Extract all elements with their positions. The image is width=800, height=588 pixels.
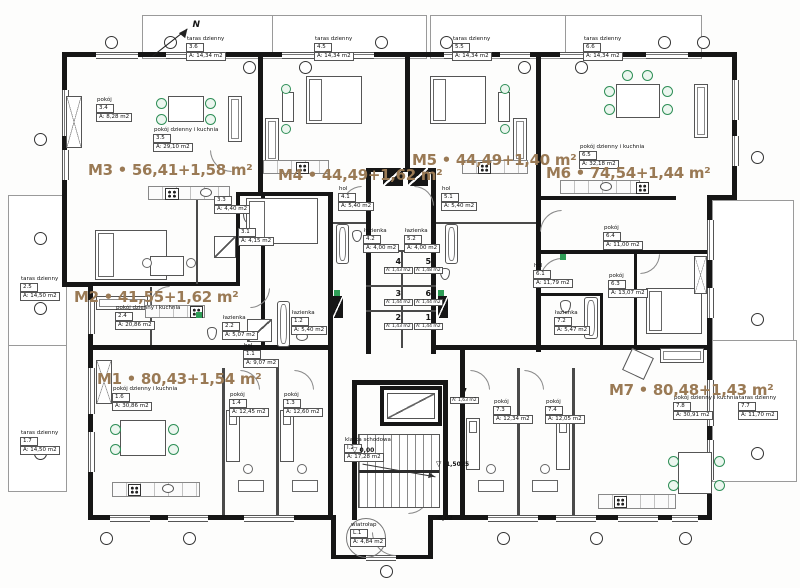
wall <box>536 52 541 352</box>
furniture-symbol <box>66 96 82 148</box>
floor-plan-canvas: taras dzienny 3.6 A: 14,34 m2 taras dzie… <box>0 0 800 588</box>
room-name: taras dzienny <box>452 36 492 43</box>
room-number: 7.8 <box>673 402 691 411</box>
storage-unit-label: 7 A: 1,63 m2 <box>450 388 479 404</box>
furniture-symbol <box>120 420 166 456</box>
room-area: A: 14,34 m2 <box>452 52 492 61</box>
room-label: łazienka 7.2 A: 5,47 m2 <box>554 310 590 335</box>
room-label: taras dzienny 2.5 A: 14,50 m2 <box>20 276 60 301</box>
furniture-symbol <box>282 92 294 122</box>
room-number: 4.1 <box>338 193 356 202</box>
room-area: A: 30,86 m2 <box>112 402 152 411</box>
room-name: wiatrołap <box>350 522 386 529</box>
grid-marker-circle <box>34 302 47 315</box>
storage-unit-label: 6 A: 1,44 m2 <box>414 290 443 306</box>
room-name: pokój <box>229 392 269 399</box>
storage-number: 6 <box>414 290 443 298</box>
room-area: A: 5,47 m2 <box>554 326 590 335</box>
window <box>732 136 739 166</box>
north-arrow-icon: N <box>142 18 198 70</box>
storage-unit-label: 5 A: 1,48 m2 <box>414 258 443 274</box>
window <box>96 52 138 59</box>
furniture-symbol <box>614 496 627 508</box>
wall <box>236 192 333 196</box>
room-number: 7.3 <box>493 406 511 415</box>
storage-number: 2 <box>384 314 413 322</box>
furniture-symbol <box>156 114 167 125</box>
room-area: A: 20,86 m2 <box>115 321 155 330</box>
room-label: pokój dzienny i kuchnia 3.5 A: 29,10 m2 <box>153 127 219 152</box>
room-area: A: 4,00 m2 <box>363 244 399 253</box>
furniture-symbol <box>280 410 294 462</box>
furniture-symbol <box>228 96 242 142</box>
wall <box>88 282 240 286</box>
room-number: 1.6 <box>112 393 130 402</box>
room-number: 6.1 <box>533 270 551 279</box>
furniture-symbol <box>250 288 270 308</box>
furniture-symbol <box>678 452 712 494</box>
room-name: łazienka <box>363 228 399 235</box>
room-label: łazienka 1.2 A: 5,40 m2 <box>291 310 327 335</box>
room-label: pokój 1.4 A: 12,45 m2 <box>229 392 269 417</box>
furniture-symbol <box>142 258 152 268</box>
room-number: 5.2 <box>404 235 422 244</box>
room-name: hol <box>441 186 477 193</box>
room-number: 4.5 <box>314 43 332 52</box>
room-name: łazienka <box>222 315 258 322</box>
wall <box>328 192 333 349</box>
grid-marker-circle <box>679 532 692 545</box>
room-area: A: 9,07 m2 <box>243 359 279 368</box>
furniture-symbol <box>622 348 654 380</box>
room-area: A: 12,34 m2 <box>493 415 533 424</box>
window <box>556 515 596 522</box>
grid-marker-circle <box>105 36 118 49</box>
partition-wall <box>196 192 198 284</box>
room-area: A: 5,40 m2 <box>291 326 327 335</box>
partition-wall <box>222 368 225 515</box>
wall <box>328 345 333 515</box>
furniture-symbol <box>294 370 314 390</box>
room-label: łazienka 2.2 A: 5,07 m2 <box>222 315 258 340</box>
room-label: pokój 1.3 A: 12,60 m2 <box>283 392 323 417</box>
room-name: pokój <box>283 392 323 399</box>
storage-number: 1 <box>414 314 443 322</box>
storage-number: 4 <box>384 258 413 266</box>
room-number: 1.2 <box>291 317 309 326</box>
room-name: łazienka <box>404 228 440 235</box>
furniture-symbol <box>150 256 184 276</box>
room-label: pokój dzienny i kuchnia 1.6 A: 30,86 m2 <box>112 386 178 411</box>
storage-unit-label: 4 A: 1,43 m2 <box>384 258 413 274</box>
north-label: N <box>192 20 200 30</box>
storage-number: 7 <box>450 388 479 396</box>
room-number: 2.4 <box>115 312 133 321</box>
room-area: A: 17,28 m2 <box>344 453 384 462</box>
grid-marker-circle <box>380 565 393 578</box>
room-number: 4.2 <box>363 235 381 244</box>
wall <box>258 52 263 196</box>
grid-marker-circle <box>575 61 588 74</box>
room-label: pokój 3.4 A: 8,28 m2 <box>96 97 132 122</box>
level-triangle-icon: ▽ <box>436 460 441 468</box>
furniture-symbol <box>214 236 236 258</box>
level-value: -0,02 <box>435 515 452 522</box>
furniture-symbol <box>333 296 343 318</box>
window <box>488 515 538 522</box>
level-marker: ▽ 0,00 <box>352 446 374 454</box>
room-number: 1.7 <box>20 437 38 446</box>
grid-marker-circle <box>34 232 47 245</box>
furniture-symbol <box>694 84 708 138</box>
room-area: A: 12,05 m2 <box>545 415 585 424</box>
storage-unit-label: 1 A: 1,44 m2 <box>414 314 443 330</box>
room-number: 2.5 <box>20 283 38 292</box>
furniture-symbol <box>243 464 253 474</box>
furniture-symbol <box>662 86 673 97</box>
furniture-symbol <box>478 480 504 492</box>
wall <box>88 345 333 350</box>
window <box>168 515 208 522</box>
furniture-symbol <box>162 484 174 493</box>
furniture-symbol <box>186 258 196 268</box>
wall <box>634 252 637 349</box>
room-name: hol <box>243 343 279 350</box>
furniture-symbol <box>486 464 496 474</box>
storage-area: A: 1,44 m2 <box>414 323 443 330</box>
furniture-symbol <box>430 76 486 124</box>
furniture-symbol <box>207 327 217 340</box>
storage-area: A: 1,44 m2 <box>384 299 413 306</box>
room-name: łazienka <box>554 310 590 317</box>
furniture-symbol <box>226 410 240 462</box>
grid-marker-circle <box>375 36 388 49</box>
wall <box>405 52 410 172</box>
grid-marker-circle <box>751 447 764 460</box>
furniture-symbol <box>668 456 679 467</box>
apartment-label: M1 • 80,43+1,54 m² <box>97 370 261 388</box>
storage-area: A: 1,44 m2 <box>414 299 443 306</box>
level-marker: ▽ -1,5075 <box>436 460 469 468</box>
furniture-symbol <box>352 230 362 242</box>
furniture-symbol <box>714 456 725 467</box>
room-label: taras dzienny 1.7 A: 14,50 m2 <box>20 430 60 455</box>
room-label: pokój 6.4 A: 11,00 m2 <box>603 225 643 250</box>
grid-marker-circle <box>299 61 312 74</box>
room-area: A: 14,34 m2 <box>314 52 354 61</box>
room-number: 7.4 <box>545 406 563 415</box>
room-number: 6.3 <box>608 280 626 289</box>
window <box>88 368 95 414</box>
window <box>618 515 658 522</box>
room-name: pokój <box>608 273 648 280</box>
room-number: 2.2 <box>222 322 240 331</box>
room-label: hol 5.1 A: 5,40 m2 <box>441 186 477 211</box>
furniture-symbol <box>498 92 510 122</box>
room-label: wiatrołap L.1 A: 4,84 m2 <box>350 522 386 547</box>
storage-unit-label: 3 A: 1,44 m2 <box>384 290 413 306</box>
room-area: A: 4,00 m2 <box>404 244 440 253</box>
storage-unit-label: 2 A: 1,43 m2 <box>384 314 413 330</box>
furniture-symbol <box>200 188 212 197</box>
storage-area: A: 1,43 m2 <box>384 267 413 274</box>
furniture-symbol <box>277 301 290 347</box>
storage-area: A: 1,48 m2 <box>414 267 443 274</box>
furniture-symbol <box>205 98 216 109</box>
room-name: hol <box>338 186 374 193</box>
room-label: łazienka 5.2 A: 4,00 m2 <box>404 228 440 253</box>
room-area: A: 29,10 m2 <box>153 143 193 152</box>
room-area: A: 14,34 m2 <box>583 52 623 61</box>
room-label: taras dzienny 5.5 A: 14,34 m2 <box>452 36 492 61</box>
furniture-symbol <box>500 124 510 134</box>
furniture-symbol <box>714 480 725 491</box>
room-area: A: 4,15 m2 <box>238 237 274 246</box>
room-name: taras dzienny <box>20 276 60 283</box>
grid-marker-circle <box>751 313 764 326</box>
window <box>88 432 95 472</box>
furniture-symbol <box>281 84 291 94</box>
grid-marker-circle <box>751 151 764 164</box>
furniture-symbol <box>156 98 167 109</box>
room-area: A: 14,50 m2 <box>20 446 60 455</box>
furniture-symbol <box>540 210 562 232</box>
furniture-symbol <box>600 182 612 191</box>
wall <box>600 293 603 350</box>
furniture-symbol <box>196 312 202 318</box>
furniture-symbol <box>112 482 200 497</box>
furniture-symbol <box>622 70 633 81</box>
terrace-outline <box>8 195 67 347</box>
furniture-symbol <box>560 254 566 260</box>
window <box>62 150 69 180</box>
room-label: 3.3 A: 4,40 m2 <box>214 196 250 214</box>
room-name: taras dzienny <box>583 36 623 43</box>
room-name: klatka schodowa <box>344 437 392 444</box>
room-name: pokój dzienny i kuchnia <box>153 127 219 134</box>
room-number: 3.5 <box>153 134 171 143</box>
room-label: hol 4.1 A: 5,40 m2 <box>338 186 374 211</box>
furniture-symbol <box>604 86 615 97</box>
room-number: L.1 <box>350 529 368 538</box>
room-name: pokój <box>96 97 132 104</box>
room-area: A: 4,40 m2 <box>214 205 250 214</box>
terrace-outline <box>8 345 67 492</box>
furniture-symbol <box>646 288 702 334</box>
furniture-symbol <box>640 254 660 274</box>
room-area: A: 30,91 m2 <box>673 411 713 420</box>
window <box>500 52 530 59</box>
furniture-symbol <box>110 424 121 435</box>
furniture-symbol <box>336 224 349 264</box>
storage-area: A: 1,43 m2 <box>384 323 413 330</box>
furniture-symbol <box>636 182 649 194</box>
furniture-symbol <box>334 290 340 296</box>
wall <box>331 515 336 559</box>
room-area: A: 11,00 m2 <box>603 241 643 250</box>
room-label: 3.1 A: 4,15 m2 <box>238 228 274 246</box>
furniture-symbol <box>642 70 653 81</box>
furniture-symbol <box>168 444 179 455</box>
room-name: taras dzienny <box>314 36 354 43</box>
level-value: -1,5075 <box>443 461 469 468</box>
room-name: hol <box>533 263 573 270</box>
furniture-symbol <box>168 96 204 122</box>
room-name: pokój <box>603 225 643 232</box>
furniture-symbol <box>500 84 510 94</box>
room-number: 1.3 <box>283 399 301 408</box>
room-label: pokój dzienny i kuchnia 2.4 A: 20,86 m2 <box>115 305 181 330</box>
room-area: A: 4,84 m2 <box>350 538 386 547</box>
room-number: 6.6 <box>583 43 601 52</box>
furniture-symbol <box>380 386 442 426</box>
window <box>707 220 714 260</box>
grid-marker-circle <box>34 133 47 146</box>
furniture-symbol <box>205 114 216 125</box>
furniture-symbol <box>110 444 121 455</box>
window <box>707 288 714 318</box>
room-number: 3.4 <box>96 104 114 113</box>
level-value: 0,00 <box>359 447 374 454</box>
furniture-symbol <box>445 224 458 264</box>
level-triangle-icon: ▽ <box>428 514 433 522</box>
room-name: łazienka <box>291 310 327 317</box>
room-area: A: 5,40 m2 <box>338 202 374 211</box>
apartment-label: M7 • 80,48+1,43 m² <box>609 381 773 399</box>
wall <box>732 52 737 200</box>
storage-area: A: 1,63 m2 <box>450 397 479 404</box>
wall <box>540 293 602 296</box>
room-number: 7.2 <box>554 317 572 326</box>
room-number: 3.3 <box>214 196 232 205</box>
furniture-symbol <box>281 124 291 134</box>
room-name: pokój <box>545 399 585 406</box>
room-number: 1.1 <box>243 350 261 359</box>
furniture-symbol <box>660 348 704 363</box>
room-label: hol 6.1 A: 11,79 m2 <box>533 263 573 288</box>
room-label: hol 1.1 A: 9,07 m2 <box>243 343 279 368</box>
furniture-symbol <box>616 84 660 118</box>
window <box>732 80 739 120</box>
grid-marker-circle <box>697 36 710 49</box>
room-name: pokój dzienny i kuchnia <box>579 144 645 151</box>
room-label: pokój 7.3 A: 12,34 m2 <box>493 399 533 424</box>
room-name: pokój dzienny i kuchnia <box>115 305 181 312</box>
grid-marker-circle <box>183 532 196 545</box>
level-triangle-icon: ▽ <box>352 446 357 454</box>
furniture-symbol <box>556 418 570 470</box>
window <box>672 515 698 522</box>
room-area: A: 11,70 m2 <box>738 411 778 420</box>
window <box>646 52 688 59</box>
furniture-symbol <box>598 494 676 509</box>
grid-marker-circle <box>100 532 113 545</box>
window <box>110 515 150 522</box>
wall <box>460 350 465 520</box>
storage-number: 5 <box>414 258 443 266</box>
room-area: A: 12,60 m2 <box>283 408 323 417</box>
room-label: pokój 6.3 A: 13,07 m2 <box>608 273 648 298</box>
grid-marker-circle <box>518 61 531 74</box>
room-area: A: 11,79 m2 <box>533 279 573 288</box>
room-number: 5.1 <box>441 193 459 202</box>
furniture-symbol <box>694 256 707 294</box>
partition-wall <box>517 368 520 515</box>
furniture-symbol <box>532 480 558 492</box>
furniture-symbol <box>668 480 679 491</box>
room-label: taras dzienny 4.5 A: 14,34 m2 <box>314 36 354 61</box>
room-name: pokój <box>493 399 533 406</box>
wall <box>536 196 676 200</box>
furniture-symbol <box>128 484 141 496</box>
furniture-symbol <box>662 104 673 115</box>
apartment-label: M2 • 41,55+1,62 m² <box>74 288 238 306</box>
furniture-symbol <box>292 480 318 492</box>
furniture-symbol <box>524 370 544 390</box>
furniture-symbol <box>604 104 615 115</box>
room-area: A: 5,07 m2 <box>222 331 258 340</box>
window <box>244 515 294 522</box>
grid-marker-circle <box>658 36 671 49</box>
furniture-symbol <box>540 464 550 474</box>
terrace-divider-line <box>272 15 273 57</box>
room-label: taras dzienny 6.6 A: 14,34 m2 <box>583 36 623 61</box>
room-label: pokój 7.4 A: 12,05 m2 <box>545 399 585 424</box>
room-area: A: 14,50 m2 <box>20 292 60 301</box>
room-area: A: 13,07 m2 <box>608 289 648 298</box>
furniture-symbol <box>168 424 179 435</box>
furniture-symbol <box>165 188 179 200</box>
storage-number: 3 <box>384 290 413 298</box>
room-number: 3.1 <box>238 228 256 237</box>
room-area: A: 5,40 m2 <box>441 202 477 211</box>
room-number: 5.5 <box>452 43 470 52</box>
furniture-symbol <box>297 464 307 474</box>
terrace-divider-line <box>565 15 566 57</box>
partition-wall <box>276 368 279 515</box>
room-number: 6.4 <box>603 232 621 241</box>
room-number: 6.5 <box>579 151 597 160</box>
furniture-symbol <box>470 370 490 390</box>
apartment-label: M3 • 56,41+1,58 m² <box>88 161 252 179</box>
room-number: 1.4 <box>229 399 247 408</box>
partition-wall <box>572 368 575 515</box>
room-number: 7.7 <box>738 402 756 411</box>
wall <box>443 380 448 520</box>
grid-marker-circle <box>590 532 603 545</box>
room-name: taras dzienny <box>20 430 60 437</box>
grid-marker-circle <box>497 532 510 545</box>
wall <box>352 380 448 385</box>
grid-marker-circle <box>243 61 256 74</box>
furniture-symbol <box>238 480 264 492</box>
apartment-label: M6 • 74,54+1,44 m² <box>546 164 710 182</box>
room-area: A: 8,28 m2 <box>96 113 132 122</box>
furniture-symbol <box>306 76 362 124</box>
room-area: A: 12,45 m2 <box>229 408 269 417</box>
furniture-symbol <box>265 118 279 162</box>
level-marker: ▽ -0,02 <box>428 514 453 522</box>
room-label: łazienka 4.2 A: 4,00 m2 <box>363 228 399 253</box>
